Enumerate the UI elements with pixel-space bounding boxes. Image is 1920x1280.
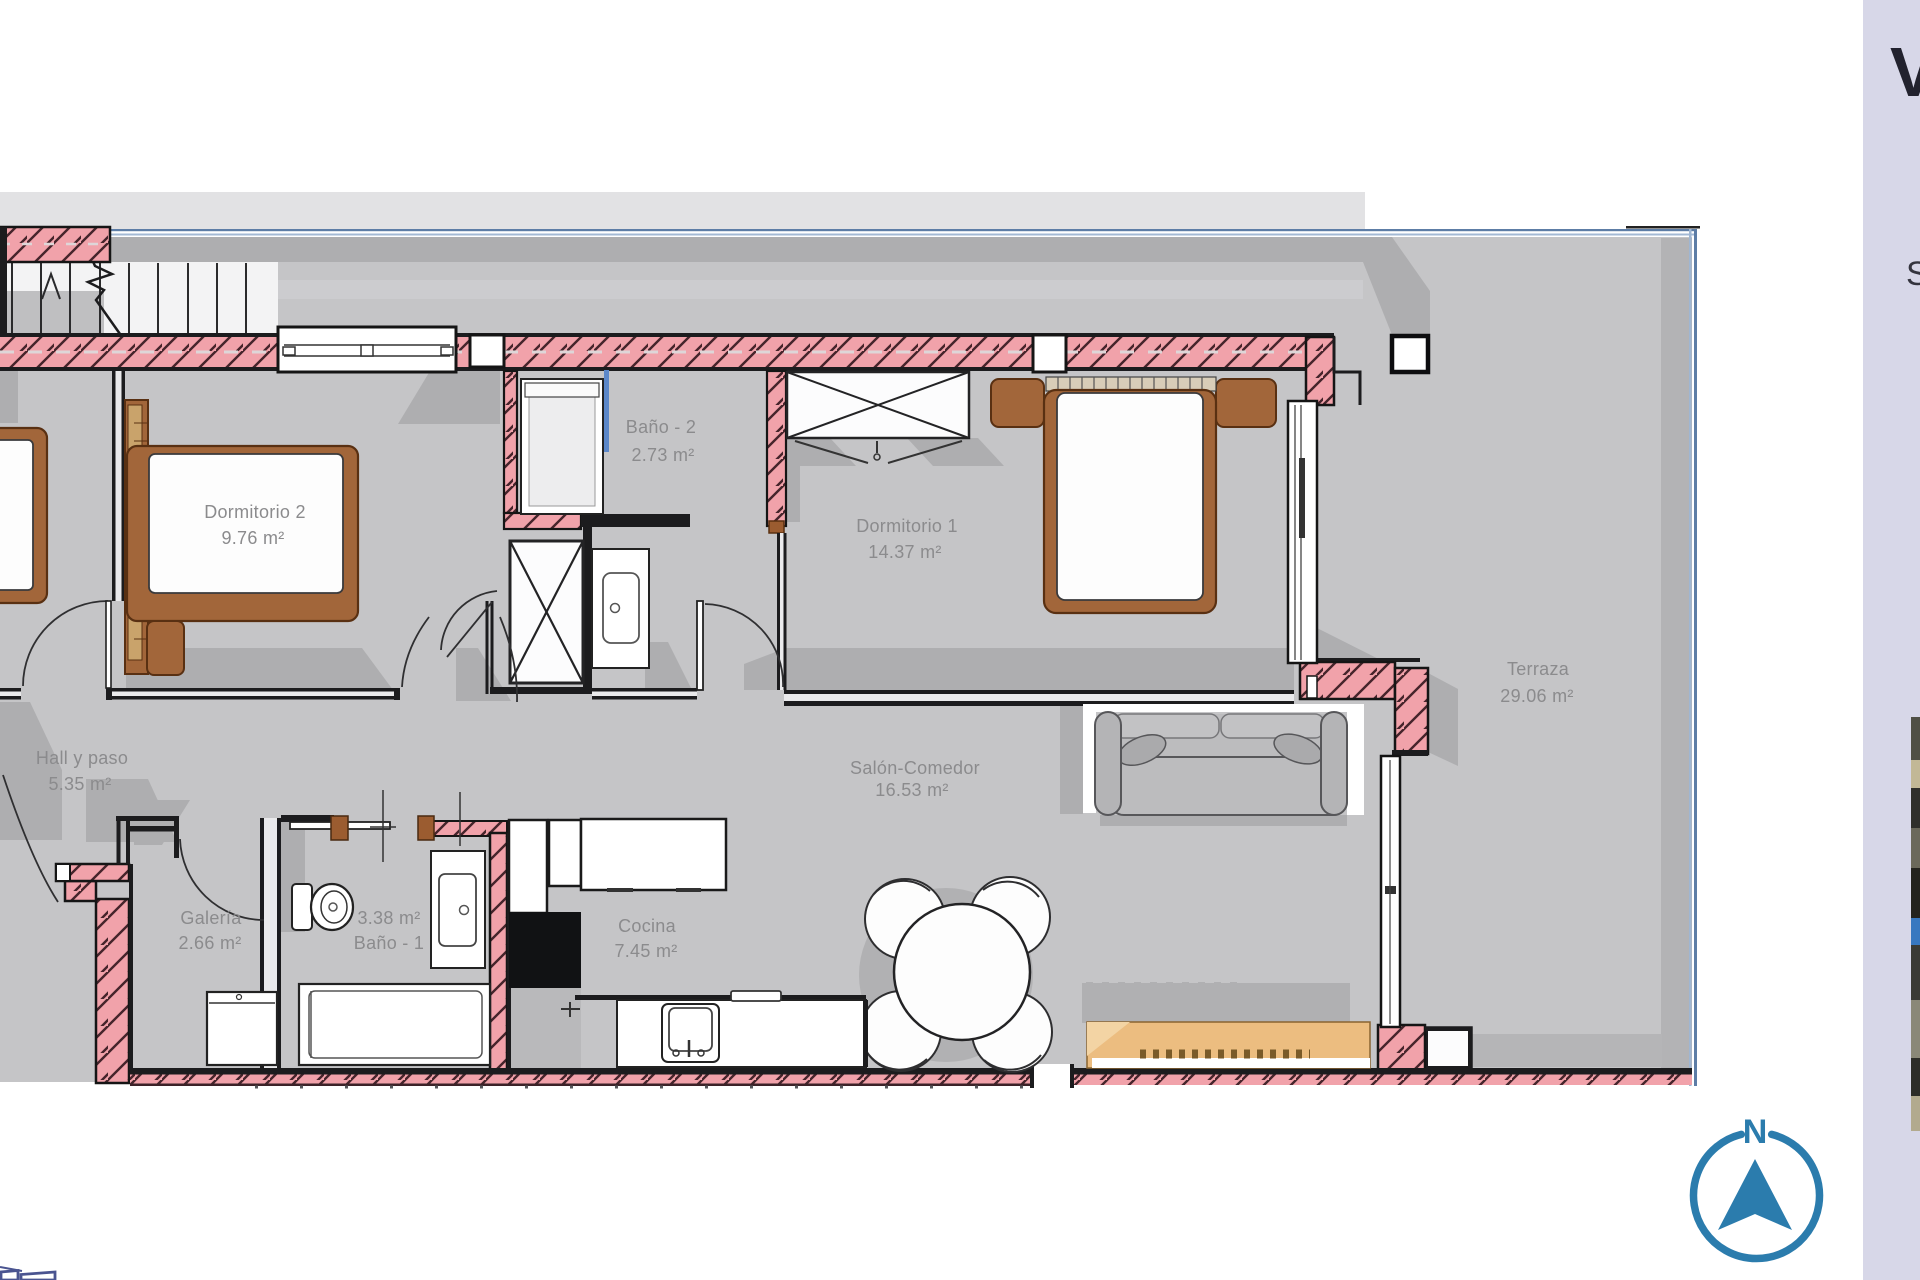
svg-text:Cocina: Cocina [618, 916, 677, 936]
svg-text:14.37 m²: 14.37 m² [868, 542, 941, 562]
svg-text:Terraza: Terraza [1507, 659, 1570, 679]
svg-text:Baño - 2: Baño - 2 [626, 417, 696, 437]
svg-text:Baño - 1: Baño - 1 [354, 933, 424, 953]
svg-text:V: V [1890, 33, 1920, 111]
svg-text:2.73 m²: 2.73 m² [631, 445, 694, 465]
svg-text:Salón-Comedor: Salón-Comedor [850, 758, 980, 778]
svg-text:Dormitorio 2: Dormitorio 2 [204, 502, 306, 522]
svg-text:3.38 m²: 3.38 m² [357, 908, 420, 928]
svg-text:9.76 m²: 9.76 m² [221, 528, 284, 548]
svg-text:29.06 m²: 29.06 m² [1500, 686, 1573, 706]
svg-text:S: S [1906, 255, 1920, 293]
svg-text:16.53 m²: 16.53 m² [875, 780, 948, 800]
svg-text:N: N [1743, 1113, 1768, 1151]
svg-text:7.45 m²: 7.45 m² [614, 941, 677, 961]
svg-text:Hall y paso: Hall y paso [36, 748, 128, 768]
svg-text:Galería: Galería [180, 908, 242, 928]
svg-text:Dormitorio 1: Dormitorio 1 [856, 516, 958, 536]
svg-text:5.35 m²: 5.35 m² [48, 774, 111, 794]
svg-text:2.66 m²: 2.66 m² [178, 933, 241, 953]
